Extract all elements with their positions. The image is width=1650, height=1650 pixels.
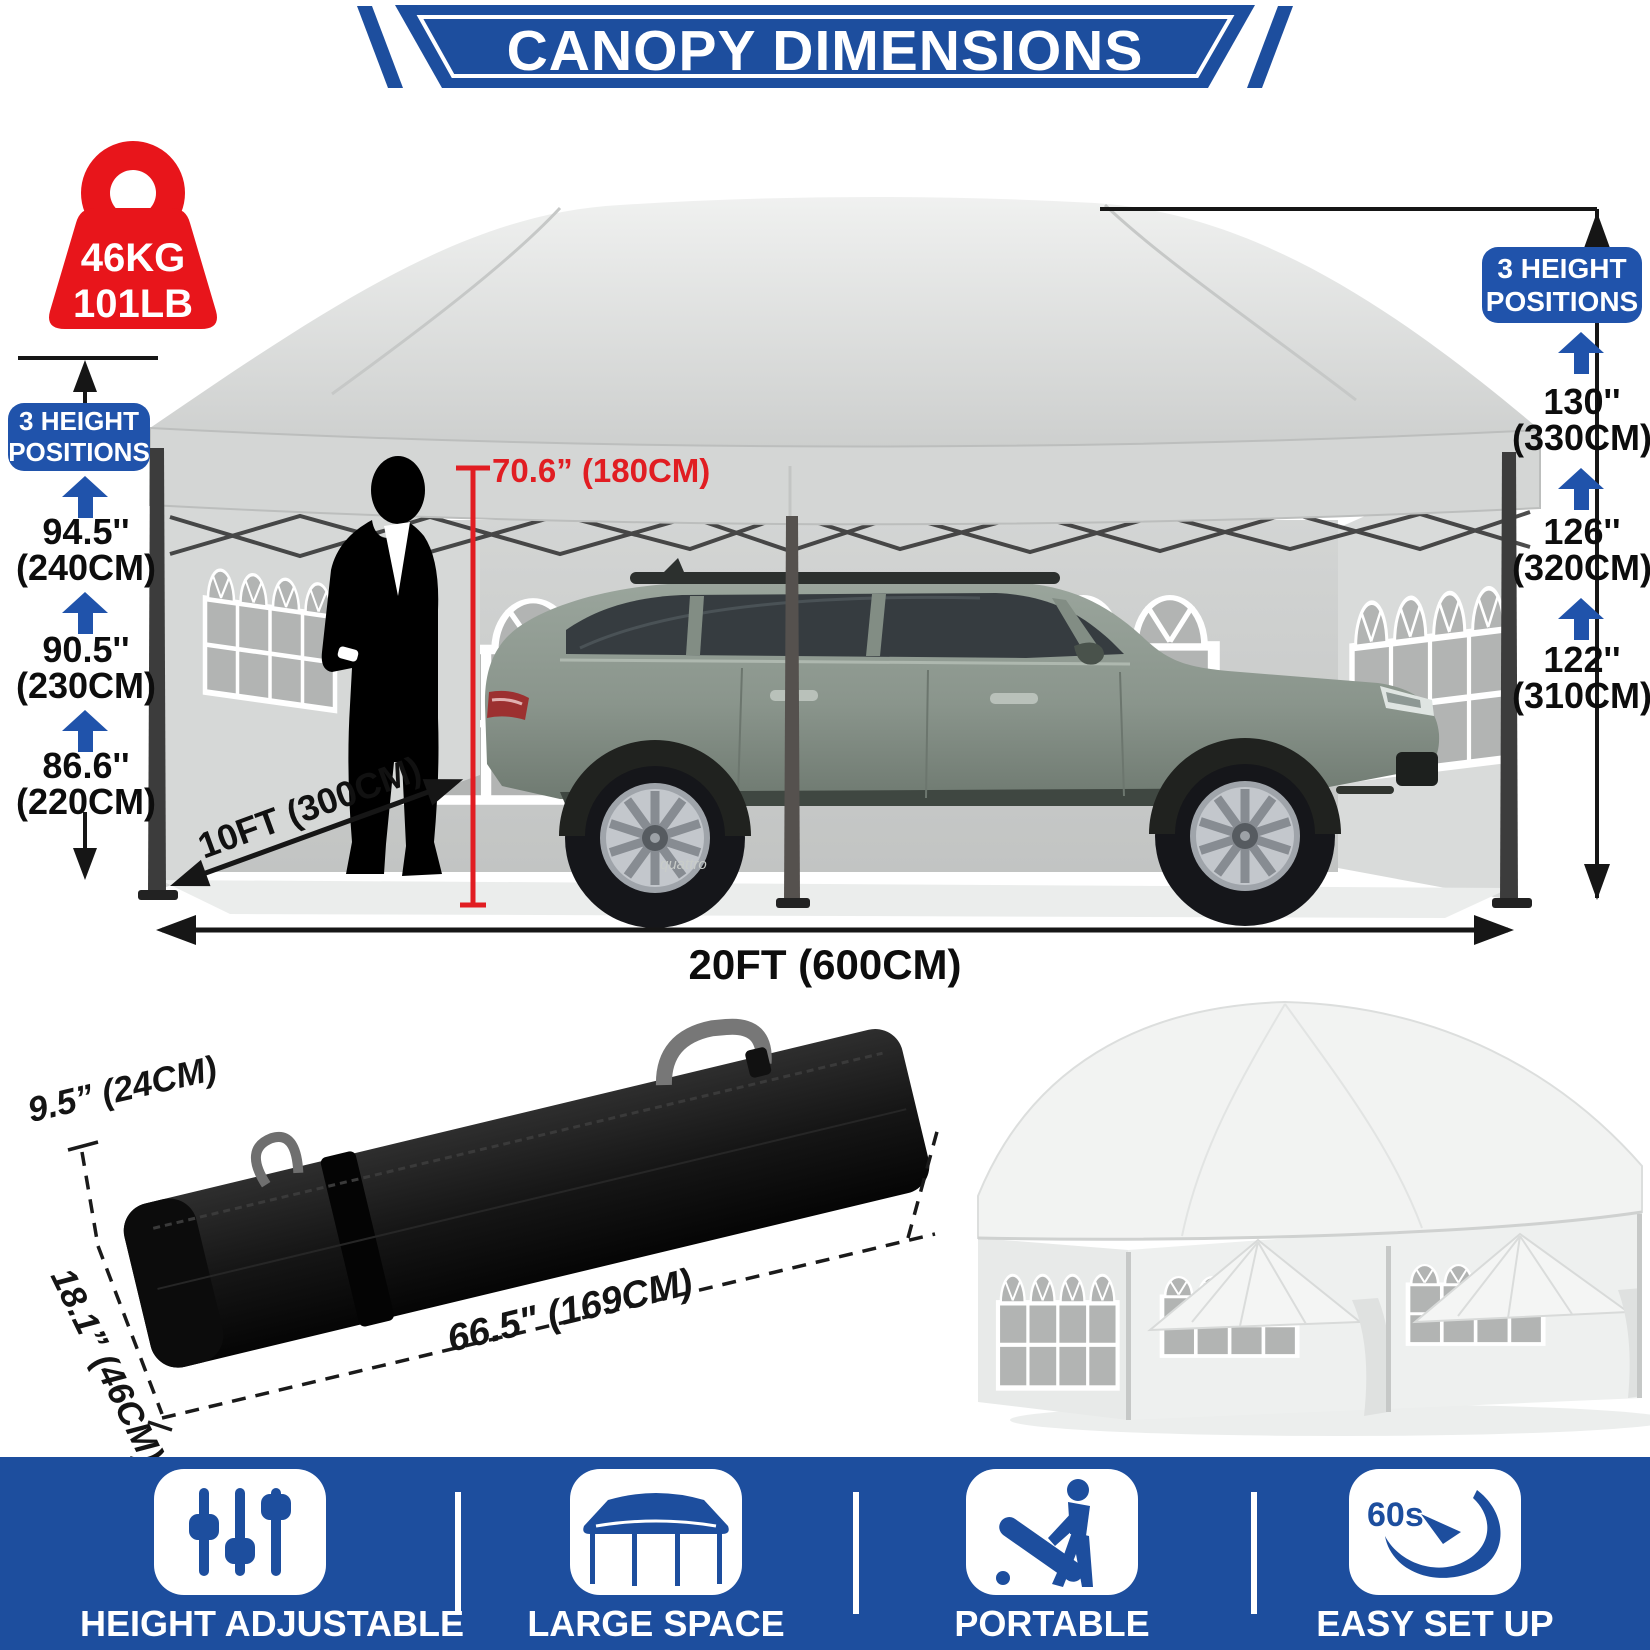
feature-label-portable: PORTABLE [922,1603,1182,1645]
feature-divider [1251,1492,1257,1614]
illustration-canvas: quattro 10FT (300CM) [0,0,1650,1650]
width-label: 20FT (600CM) [600,944,1050,986]
sliders-icon [154,1469,326,1595]
feature-bar: HEIGHT ADJUSTABLE LARGE SPACE [0,1457,1650,1650]
feature-divider [853,1492,859,1614]
person-height-label: 70.6” (180CM) [492,452,710,490]
feature-label-height-adjustable: HEIGHT ADJUSTABLE [80,1603,400,1645]
feature-label-easy-setup: EASY SET UP [1295,1603,1575,1645]
right-height-2-in: 126'' [1492,514,1650,550]
left-height-1-cm: (240CM) [0,550,172,586]
weight-lb: 101LB [48,284,218,324]
up-arrow-icon [1558,332,1604,374]
right-height-2-cm: (320CM) [1492,550,1650,586]
portable-icon [966,1469,1138,1595]
front-wheel [1193,784,1297,888]
right-height-3-in: 122'' [1492,642,1650,678]
mini-tent [978,1002,1650,1436]
right-height-badge: 3 HEIGHT POSITIONS [1482,247,1642,323]
up-arrow-icon [1558,468,1604,510]
left-height-2-in: 90.5'' [0,632,172,668]
feature-divider [455,1492,461,1614]
weight-kg: 46KG [48,238,218,278]
up-arrow-icon [1558,598,1604,640]
right-height-1-in: 130'' [1492,384,1650,420]
easy-setup-icon: 60s [1349,1469,1521,1595]
tent-illustration: quattro [138,197,1540,928]
canopy-dimensions-infographic: { "banner": {"title": "CANOPY DIMENSIONS… [0,0,1650,1650]
canopy-icon [570,1469,742,1595]
left-height-3-cm: (220CM) [0,784,172,820]
left-height-badge: 3 HEIGHT POSITIONS [8,403,150,471]
up-arrow-icon [62,592,108,634]
car-badge-text: quattro [660,856,707,873]
left-height-1-in: 94.5'' [0,514,172,550]
rear-wheel [603,786,707,890]
right-height-3-cm: (310CM) [1492,678,1650,714]
sixty-seconds-text: 60s [1367,1496,1424,1534]
left-height-3-in: 86.6'' [0,748,172,784]
left-height-2-cm: (230CM) [0,668,172,704]
feature-label-large-space: LARGE SPACE [506,1603,806,1645]
page-title: CANOPY DIMENSIONS [400,18,1250,84]
right-height-1-cm: (330CM) [1492,420,1650,456]
